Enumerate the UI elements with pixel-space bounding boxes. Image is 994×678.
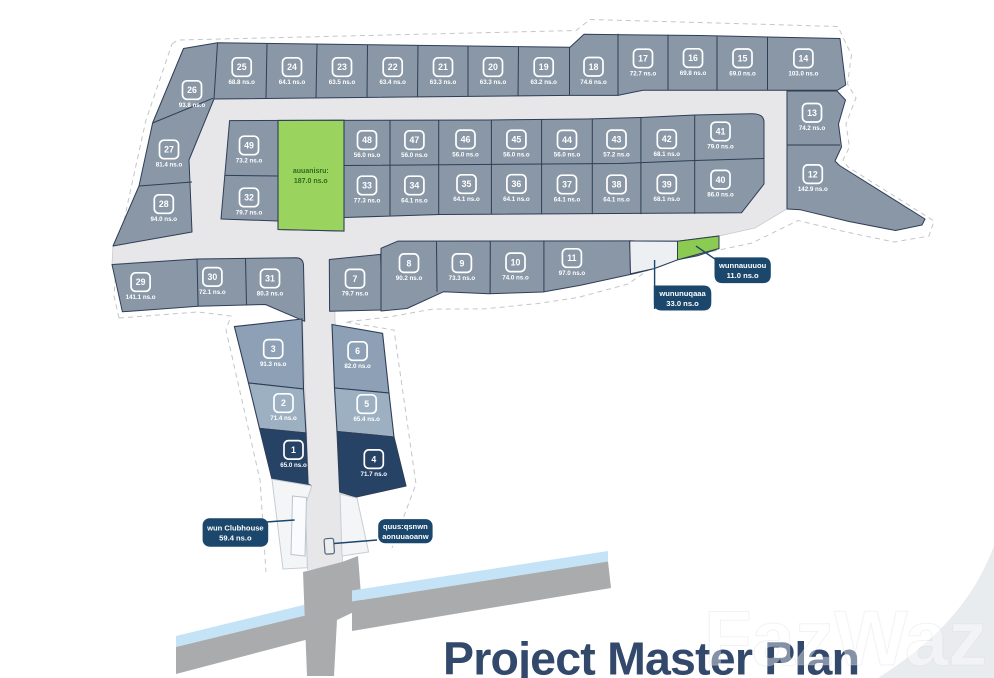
svg-text:1: 1: [291, 445, 296, 455]
svg-text:24: 24: [287, 62, 297, 72]
svg-text:69.8 ns.o: 69.8 ns.o: [680, 70, 707, 77]
svg-text:35: 35: [462, 179, 472, 189]
svg-text:42: 42: [662, 134, 672, 144]
svg-text:36: 36: [512, 179, 522, 189]
svg-text:63.5 ns.o: 63.5 ns.o: [329, 79, 356, 86]
svg-text:142.9 ns.o: 142.9 ns.o: [798, 186, 828, 193]
svg-text:64.1 ns.o: 64.1 ns.o: [554, 196, 581, 203]
svg-text:34: 34: [410, 181, 420, 191]
svg-text:39: 39: [662, 179, 672, 189]
svg-text:45: 45: [512, 135, 522, 145]
svg-text:71.4 ns.o: 71.4 ns.o: [270, 415, 297, 422]
svg-text:86.0 ns.o: 86.0 ns.o: [707, 192, 734, 199]
svg-text:31: 31: [265, 274, 275, 284]
svg-text:18: 18: [589, 62, 599, 72]
svg-text:73.3 ns.o: 73.3 ns.o: [449, 275, 476, 282]
svg-text:wun Clubhouse: wun Clubhouse: [206, 523, 264, 532]
svg-text:12: 12: [808, 169, 818, 179]
svg-text:65.0 ns.o: 65.0 ns.o: [280, 462, 307, 469]
svg-text:187.0 ns.o: 187.0 ns.o: [294, 178, 328, 185]
svg-text:21: 21: [438, 62, 448, 72]
svg-text:81.4 ns.o: 81.4 ns.o: [156, 162, 183, 169]
svg-text:27: 27: [164, 145, 174, 155]
svg-text:141.1 ns.o: 141.1 ns.o: [126, 294, 156, 301]
svg-text:25: 25: [237, 62, 247, 72]
svg-text:93.8 ns.o: 93.8 ns.o: [179, 102, 206, 109]
svg-text:FazWaz: FazWaz: [704, 594, 987, 678]
svg-text:90.2 ns.o: 90.2 ns.o: [396, 275, 423, 282]
svg-text:64.1 ns.o: 64.1 ns.o: [603, 196, 630, 203]
svg-text:3: 3: [271, 344, 276, 354]
svg-text:68.1 ns.o: 68.1 ns.o: [654, 151, 681, 158]
svg-text:79.7 ns.o: 79.7 ns.o: [236, 210, 263, 217]
svg-text:65.4 ns.o: 65.4 ns.o: [353, 416, 380, 423]
svg-text:64.1 ns.o: 64.1 ns.o: [503, 196, 530, 203]
svg-text:64.1 ns.o: 64.1 ns.o: [279, 79, 306, 86]
svg-text:10: 10: [511, 257, 521, 267]
svg-text:wunnauuuou: wunnauuuou: [718, 261, 767, 270]
svg-text:33: 33: [362, 181, 372, 191]
svg-text:43: 43: [612, 134, 622, 144]
svg-text:56.0 ns.o: 56.0 ns.o: [354, 152, 381, 159]
svg-text:30: 30: [208, 272, 218, 282]
svg-text:15: 15: [738, 53, 748, 63]
svg-text:wununuqaaa: wununuqaaa: [658, 289, 706, 298]
svg-text:68.8 ns.o: 68.8 ns.o: [228, 79, 255, 86]
svg-text:14: 14: [799, 54, 809, 64]
svg-text:20: 20: [488, 62, 498, 72]
svg-text:22: 22: [388, 62, 398, 72]
svg-text:40: 40: [716, 175, 726, 185]
svg-text:9: 9: [459, 258, 464, 268]
svg-text:38: 38: [612, 180, 622, 190]
svg-text:4: 4: [371, 454, 376, 464]
svg-text:72.7 ns.o: 72.7 ns.o: [630, 71, 657, 78]
svg-text:63.3 ns.o: 63.3 ns.o: [430, 79, 457, 86]
svg-text:57.2 ns.o: 57.2 ns.o: [603, 151, 630, 158]
svg-text:56.0 ns.o: 56.0 ns.o: [401, 152, 428, 159]
svg-text:11.0 ns.o: 11.0 ns.o: [727, 271, 759, 280]
svg-text:71.7 ns.o: 71.7 ns.o: [361, 471, 388, 478]
svg-text:103.0 ns.o: 103.0 ns.o: [788, 70, 818, 77]
svg-text:73.2 ns.o: 73.2 ns.o: [236, 158, 263, 165]
svg-text:49: 49: [244, 141, 254, 151]
svg-text:29: 29: [136, 277, 146, 287]
svg-text:7: 7: [353, 274, 358, 284]
svg-text:79.7 ns.o: 79.7 ns.o: [342, 291, 369, 298]
svg-text:19: 19: [539, 62, 549, 72]
svg-text:aonuuaoanw: aonuuaoanw: [382, 532, 429, 541]
svg-text:5: 5: [364, 399, 369, 409]
svg-text:41: 41: [716, 127, 726, 137]
svg-text:28: 28: [159, 199, 169, 209]
svg-text:69.0 ns.o: 69.0 ns.o: [729, 70, 756, 77]
svg-text:68.1 ns.o: 68.1 ns.o: [654, 196, 681, 203]
svg-text:47: 47: [410, 135, 420, 145]
svg-text:74.0 ns.o: 74.0 ns.o: [502, 274, 529, 281]
svg-text:64.1 ns.o: 64.1 ns.o: [401, 197, 428, 204]
svg-text:94.0 ns.o: 94.0 ns.o: [151, 216, 178, 223]
svg-text:63.2 ns.o: 63.2 ns.o: [530, 79, 557, 86]
svg-text:33.0 ns.o: 33.0 ns.o: [666, 299, 699, 308]
svg-text:91.3 ns.o: 91.3 ns.o: [260, 361, 287, 368]
svg-text:56.0 ns.o: 56.0 ns.o: [503, 152, 530, 159]
svg-text:37: 37: [562, 180, 572, 190]
svg-text:56.0 ns.o: 56.0 ns.o: [554, 152, 581, 159]
svg-text:16: 16: [688, 53, 698, 63]
svg-text:74.6 ns.o: 74.6 ns.o: [580, 79, 607, 86]
svg-text:auuanisru:: auuanisru:: [293, 168, 329, 175]
svg-text:48: 48: [362, 135, 372, 145]
svg-text:13: 13: [807, 108, 817, 118]
svg-text:74.2 ns.o: 74.2 ns.o: [799, 125, 826, 132]
svg-text:quus:qsnwn: quus:qsnwn: [383, 522, 428, 531]
svg-text:80.3 ns.o: 80.3 ns.o: [257, 291, 284, 298]
svg-text:79.0 ns.o: 79.0 ns.o: [707, 144, 734, 151]
svg-text:6: 6: [355, 346, 360, 356]
svg-text:59.4 ns.o: 59.4 ns.o: [219, 533, 252, 542]
svg-text:23: 23: [337, 62, 347, 72]
svg-text:72.1 ns.o: 72.1 ns.o: [199, 289, 226, 296]
svg-text:97.0 ns.o: 97.0 ns.o: [559, 270, 586, 277]
svg-text:32: 32: [244, 193, 254, 203]
svg-text:11: 11: [567, 253, 576, 263]
svg-text:8: 8: [407, 258, 412, 268]
svg-text:64.1 ns.o: 64.1 ns.o: [453, 196, 480, 203]
svg-text:46: 46: [461, 134, 471, 144]
svg-text:17: 17: [638, 54, 648, 64]
svg-text:82.0 ns.o: 82.0 ns.o: [344, 363, 371, 370]
svg-text:63.3 ns.o: 63.3 ns.o: [480, 79, 507, 86]
svg-text:44: 44: [562, 135, 572, 145]
svg-text:77.3 ns.o: 77.3 ns.o: [354, 197, 381, 204]
svg-text:56.0 ns.o: 56.0 ns.o: [452, 151, 479, 158]
svg-text:26: 26: [187, 85, 197, 95]
svg-text:63.4 ns.o: 63.4 ns.o: [379, 79, 406, 86]
svg-text:2: 2: [281, 398, 286, 408]
